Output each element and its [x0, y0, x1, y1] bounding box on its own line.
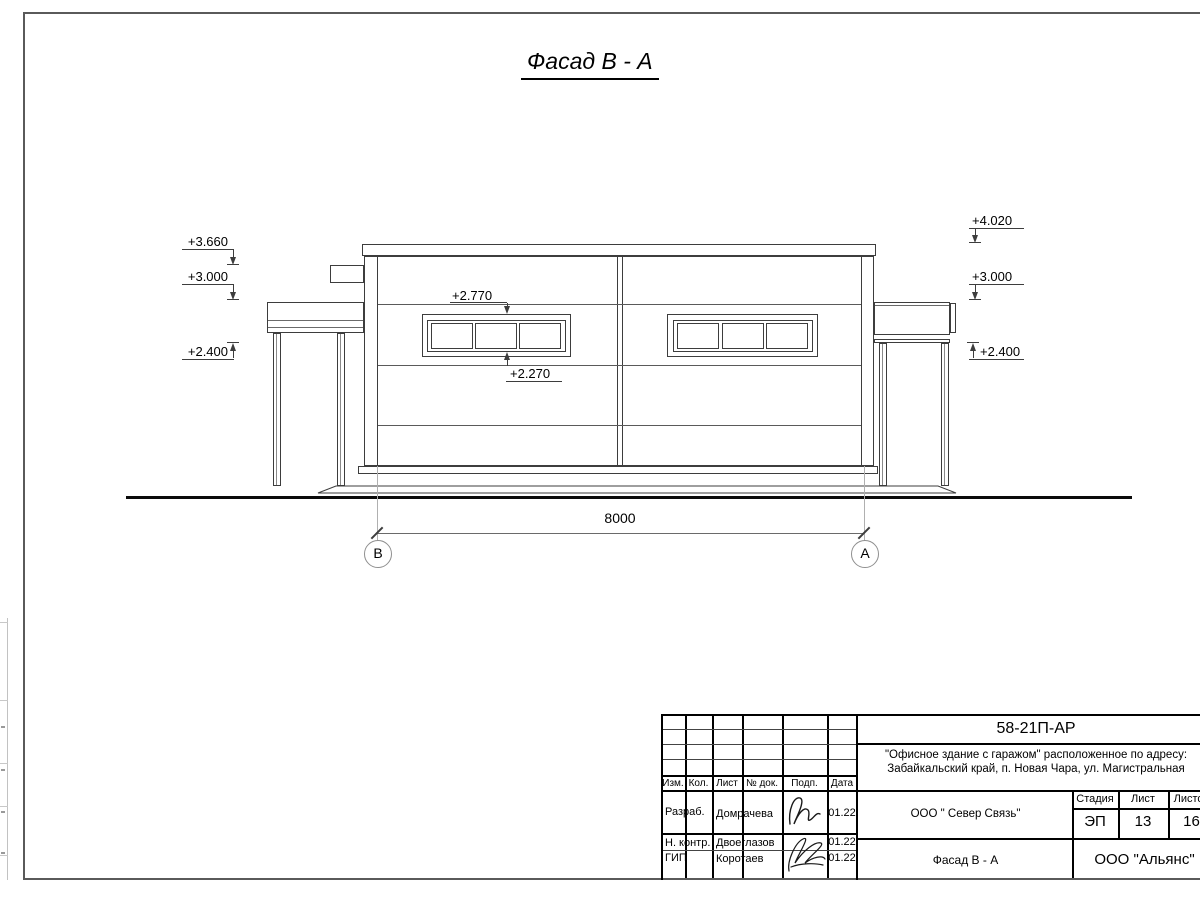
titleblock-border — [661, 714, 663, 880]
arrow-down-icon — [504, 306, 510, 314]
left-canopy-line — [268, 320, 363, 321]
left-porch-column-edge — [340, 334, 341, 485]
titleblock-row-line — [663, 759, 856, 760]
elevation-underline — [182, 359, 234, 360]
titleblock-row-line — [858, 838, 1200, 840]
sheet-header: Лист — [1118, 793, 1168, 805]
left-porch-column — [273, 333, 281, 486]
col-header-data: Дата — [827, 778, 857, 789]
elevation-value: +2.400 — [980, 345, 1020, 358]
sheet-number: 13 — [1118, 813, 1168, 830]
row-date: 01.22 — [827, 852, 857, 864]
row-name: Домрачева — [716, 808, 773, 820]
col-header-kol: Кол. — [685, 778, 712, 789]
wall-center-joint — [617, 256, 618, 466]
right-porch-column-edge — [882, 344, 883, 485]
stage-header: Стадия — [1072, 793, 1118, 805]
company-name: ООО "Альянс" — [1074, 851, 1200, 868]
row-role: Н. контр. — [665, 837, 710, 849]
drawing-name: Фасад В - А — [859, 853, 1072, 867]
elevation-arrow-line — [973, 349, 974, 358]
right-porch-column — [941, 343, 949, 486]
elevation-value: +3.000 — [972, 270, 1012, 283]
elevation-value: +3.660 — [182, 235, 228, 248]
window-right-pane — [722, 323, 764, 349]
siding-line — [378, 304, 861, 305]
row-date: 01.22 — [827, 807, 857, 819]
right-porch-column — [879, 343, 887, 486]
row-date: 01.22 — [827, 836, 857, 848]
sheets-header: Листов — [1168, 793, 1200, 805]
titleblock-row-line — [663, 744, 856, 745]
row-name: Двоеглазов — [716, 837, 774, 849]
siding-line — [378, 425, 861, 426]
window-right-pane — [677, 323, 719, 349]
row-name: Коротаев — [716, 853, 764, 865]
elevation-underline — [969, 228, 1024, 229]
grid-bubble-b: В — [364, 540, 392, 568]
elevation-value: +2.770 — [452, 289, 492, 302]
left-canopy — [267, 302, 364, 333]
doc-code: 58-21П-АР — [880, 720, 1192, 738]
left-porch-column — [337, 333, 345, 486]
left-porch-column-edge — [276, 334, 277, 485]
elevation-arrow-line — [507, 358, 508, 366]
elevation-tick — [969, 242, 981, 243]
elevation-tick — [227, 264, 239, 265]
dimension-line — [377, 533, 864, 534]
contractor-name: ООО " Север Связь" — [859, 808, 1072, 820]
window-left-pane — [431, 323, 473, 349]
elevation-value: +2.270 — [510, 367, 550, 380]
sheets-total: 16 — [1168, 813, 1200, 830]
right-canopy-line — [875, 305, 949, 306]
window-left-pane — [475, 323, 517, 349]
elevation-underline — [969, 359, 1024, 360]
right-canopy — [874, 302, 950, 335]
elevation-tick — [227, 299, 239, 300]
parapet-cap — [362, 244, 876, 256]
wall-center-joint — [622, 256, 623, 466]
main-wall — [364, 256, 874, 466]
right-porch-column-edge — [944, 344, 945, 485]
left-canopy-line — [268, 327, 363, 328]
pilaster-right-line — [861, 256, 862, 466]
dimension-value: 8000 — [595, 512, 645, 525]
ground-line — [126, 496, 1132, 499]
grid-bubble-a: А — [851, 540, 879, 568]
titleblock-row-line — [663, 729, 856, 730]
drawing-sheet: Фасад В - А +3.660 — [0, 0, 1200, 900]
window-left-pane — [519, 323, 561, 349]
titleblock-row-line — [663, 790, 856, 792]
elevation-value: +2.400 — [182, 345, 228, 358]
col-header-ndok: № док. — [742, 778, 782, 789]
building-base — [358, 466, 878, 474]
titleblock-row-line — [858, 790, 1200, 792]
pilaster-left-line — [377, 256, 378, 466]
col-header-podp: Подп. — [782, 778, 827, 789]
titleblock-row-line — [1072, 808, 1200, 810]
object-address-line2: Забайкальский край, п. Новая Чара, ул. М… — [870, 763, 1200, 775]
grid-axis-label: А — [860, 545, 869, 561]
roof-protrusion — [330, 265, 364, 283]
elevation-underline — [182, 249, 234, 250]
elevation-underline — [969, 284, 1024, 285]
row-role: Разраб. — [665, 806, 705, 818]
right-canopy-edge-drop — [950, 303, 956, 333]
titleblock-col-line — [712, 714, 714, 878]
titleblock-row-line — [663, 775, 856, 777]
elevation-underline — [450, 302, 507, 303]
elevation-arrow-line — [233, 349, 234, 358]
stage-value: ЭП — [1072, 813, 1118, 830]
elevation-underline — [182, 284, 234, 285]
row-role: ГИП — [665, 852, 687, 864]
elevation-value: +3.000 — [182, 270, 228, 283]
signature-2 — [781, 833, 829, 877]
grid-axis-label: В — [373, 545, 382, 561]
col-header-izm: Изм. — [661, 778, 685, 789]
signature-1 — [784, 792, 826, 832]
col-header-list: Лист — [712, 778, 742, 789]
titleblock-row-line — [858, 743, 1200, 745]
elevation-tick — [969, 299, 981, 300]
siding-line — [378, 365, 861, 366]
elevation-underline — [506, 381, 562, 382]
elevation-value: +4.020 — [972, 214, 1012, 227]
window-right-pane — [766, 323, 808, 349]
object-address-line1: "Офисное здание с гаражом" расположенное… — [870, 749, 1200, 761]
